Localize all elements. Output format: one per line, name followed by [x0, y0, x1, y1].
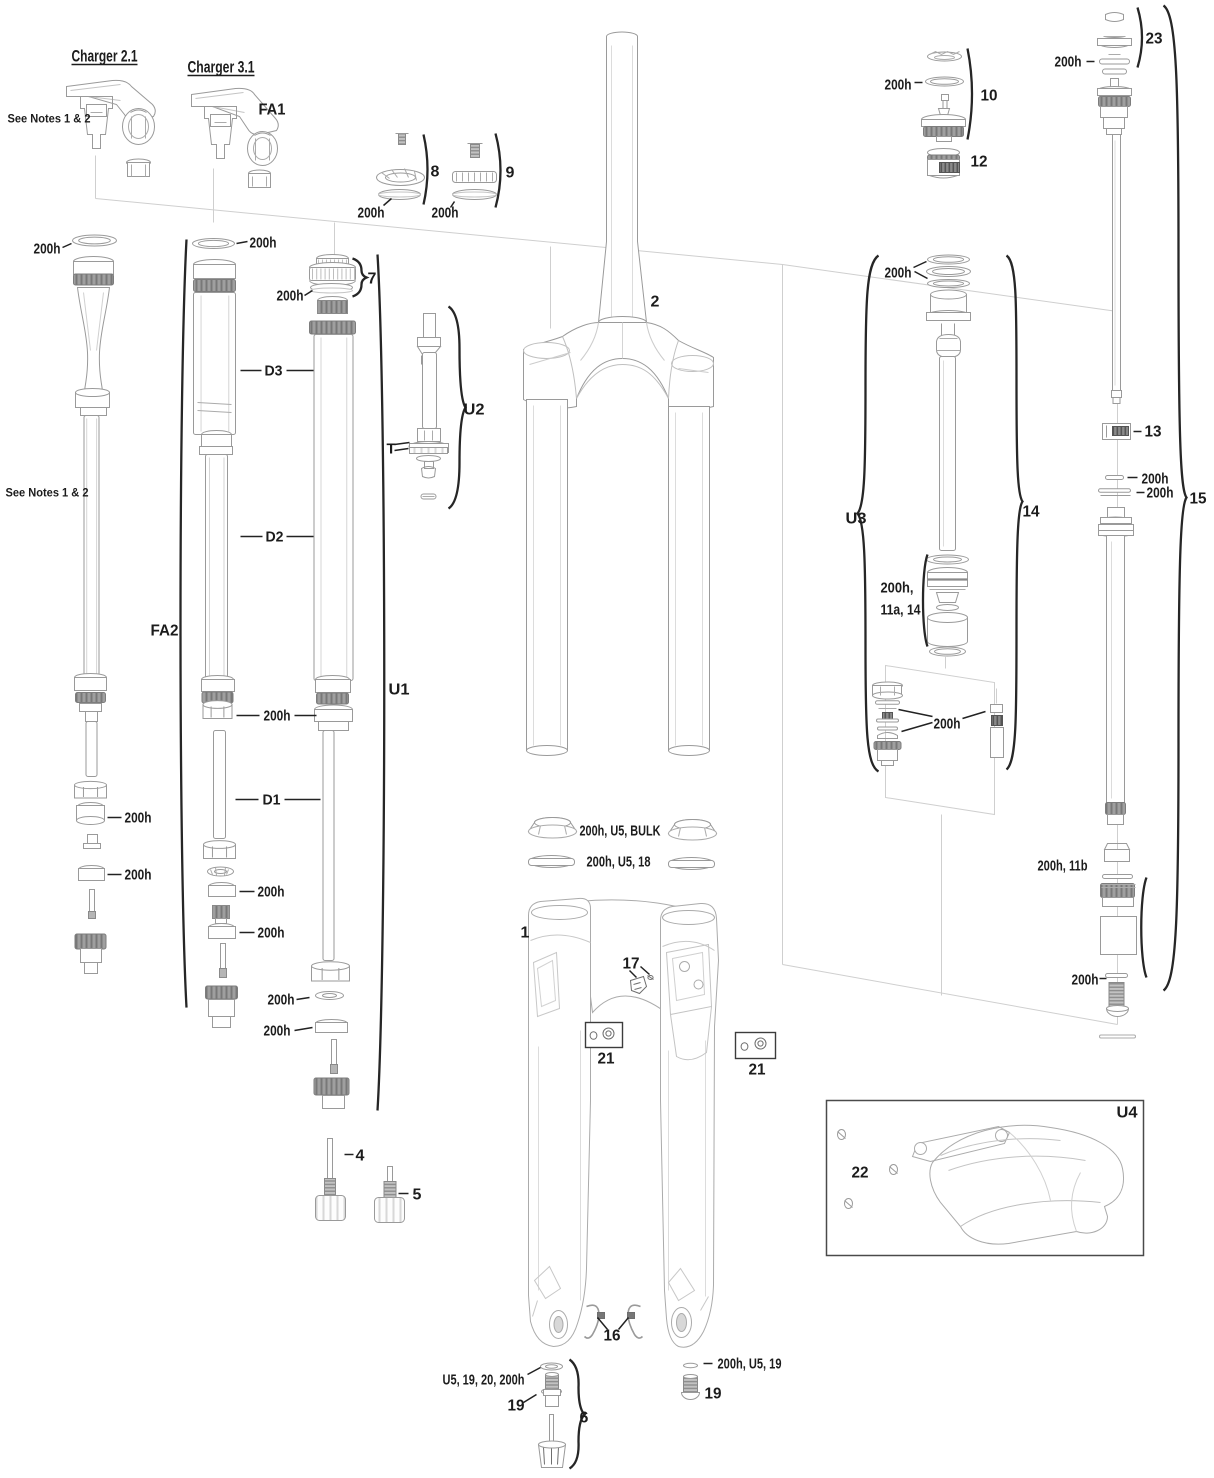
svg-text:13: 13: [1145, 424, 1162, 441]
svg-text:D2: D2: [266, 529, 284, 546]
svg-text:200h, 11b: 200h, 11b: [1038, 858, 1088, 875]
svg-text:200h: 200h: [125, 867, 152, 884]
svg-text:9: 9: [506, 165, 515, 182]
svg-text:Charger 3.1: Charger 3.1: [188, 58, 255, 77]
svg-text:8: 8: [431, 164, 440, 181]
svg-text:U3: U3: [846, 511, 867, 528]
svg-text:U4: U4: [1117, 1105, 1138, 1122]
svg-text:200h: 200h: [250, 235, 277, 252]
svg-text:200h: 200h: [432, 205, 459, 222]
svg-text:4: 4: [356, 1148, 365, 1165]
svg-text:200h: 200h: [264, 1023, 291, 1040]
svg-text:U1: U1: [389, 682, 410, 699]
svg-text:22: 22: [852, 1165, 869, 1182]
svg-text:200h: 200h: [268, 992, 295, 1009]
svg-text:200h: 200h: [934, 716, 961, 733]
svg-text:200h: 200h: [277, 288, 304, 305]
svg-text:200h: 200h: [1055, 54, 1082, 71]
svg-text:200h, U5, BULK: 200h, U5, BULK: [580, 823, 661, 840]
svg-text:200h: 200h: [358, 205, 385, 222]
svg-text:200h, U5, 18: 200h, U5, 18: [587, 854, 651, 871]
svg-text:5: 5: [413, 1187, 422, 1204]
svg-text:12: 12: [971, 154, 988, 171]
svg-text:See Notes 1 & 2: See Notes 1 & 2: [8, 114, 91, 126]
svg-text:1: 1: [521, 925, 530, 942]
svg-text:19: 19: [508, 1398, 525, 1415]
svg-text:Charger 2.1: Charger 2.1: [72, 47, 138, 66]
svg-text:7: 7: [368, 271, 377, 288]
svg-text:14: 14: [1023, 504, 1040, 521]
svg-text:FA1: FA1: [259, 102, 286, 119]
svg-text:21: 21: [598, 1051, 615, 1068]
svg-text:200h: 200h: [258, 884, 285, 901]
svg-text:200h,: 200h,: [881, 580, 914, 597]
svg-text:15: 15: [1190, 491, 1207, 508]
svg-text:U5, 19, 20, 200h: U5, 19, 20, 200h: [443, 1372, 525, 1389]
svg-text:2: 2: [651, 294, 660, 311]
svg-text:200h: 200h: [258, 925, 285, 942]
svg-text:D1: D1: [263, 792, 281, 809]
svg-text:200h: 200h: [125, 810, 152, 827]
svg-text:200h: 200h: [1147, 485, 1174, 502]
svg-text:23: 23: [1146, 31, 1163, 48]
svg-text:200h: 200h: [885, 265, 912, 282]
svg-text:200h: 200h: [264, 708, 291, 725]
svg-text:11a, 14: 11a, 14: [881, 602, 922, 619]
svg-text:FA2: FA2: [151, 623, 179, 640]
svg-text:6: 6: [580, 1410, 589, 1427]
svg-text:21: 21: [749, 1062, 766, 1079]
svg-text:200h: 200h: [1072, 972, 1099, 989]
svg-text:U2: U2: [464, 402, 485, 419]
svg-text:D3: D3: [265, 363, 283, 380]
svg-text:T: T: [387, 441, 396, 458]
svg-text:200h, U5, 19: 200h, U5, 19: [718, 1356, 782, 1373]
svg-text:See Notes 1 & 2: See Notes 1 & 2: [6, 488, 89, 500]
svg-text:16: 16: [604, 1328, 621, 1345]
svg-text:200h: 200h: [885, 77, 912, 94]
svg-text:200h: 200h: [34, 241, 61, 258]
svg-text:17: 17: [623, 956, 640, 973]
svg-text:19: 19: [705, 1386, 722, 1403]
svg-text:10: 10: [981, 88, 998, 105]
